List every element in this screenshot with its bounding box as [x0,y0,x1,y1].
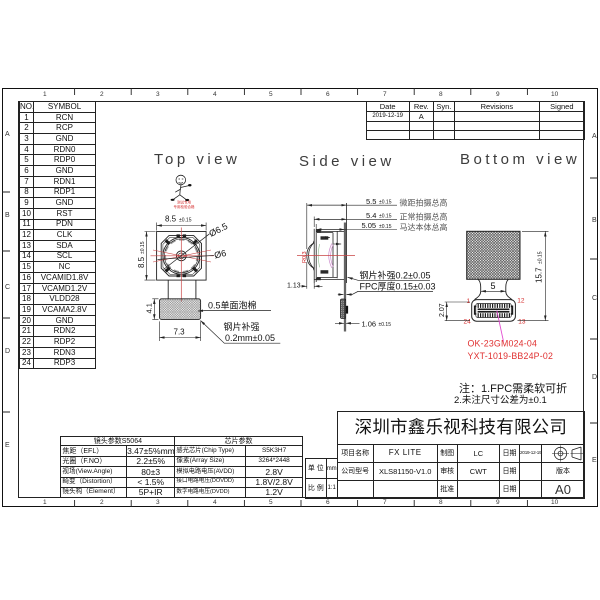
svg-text:7.3: 7.3 [174,328,186,337]
svg-text:5: 5 [491,281,496,291]
svg-text:Ø6: Ø6 [213,248,227,260]
svg-text:8.5: 8.5 [165,215,177,224]
svg-text:R0.3: R0.3 [302,251,308,263]
svg-text:24: 24 [464,319,472,326]
svg-text:±0.15: ±0.15 [379,224,392,230]
svg-text:13: 13 [518,319,526,326]
svg-text:0.5单面泡棉: 0.5单面泡棉 [208,299,257,310]
svg-text:15.7: 15.7 [535,267,544,283]
svg-text:8.5: 8.5 [137,256,146,268]
svg-text:FPC厚度0.15±0.03: FPC厚度0.15±0.03 [360,281,436,292]
svg-text:5.5: 5.5 [366,197,376,206]
svg-text:钢片补强0.2±0.05: 钢片补强0.2±0.05 [360,269,431,280]
svg-text:微距拍摄总高: 微距拍摄总高 [400,198,448,208]
svg-text:5.05: 5.05 [362,221,377,230]
svg-text:±0.15: ±0.15 [379,200,392,206]
svg-text:钢片补强: 钢片补强 [224,321,260,332]
svg-text:4.1: 4.1 [145,303,154,313]
svg-text:1: 1 [467,298,471,305]
svg-text:专用检验合格: 专用检验合格 [174,204,195,209]
svg-text:马达本体总高: 马达本体总高 [400,222,448,232]
svg-text:12: 12 [517,298,525,305]
svg-text:1.13: 1.13 [287,283,301,290]
svg-text:YXT-1019-BB24P-02: YXT-1019-BB24P-02 [468,351,554,361]
svg-text:±0.15: ±0.15 [538,251,544,264]
svg-text:测试专用: 测试专用 [177,200,191,205]
svg-text:±0.15: ±0.15 [379,322,392,328]
svg-text:1.06: 1.06 [362,319,377,328]
svg-text:±0.15: ±0.15 [140,241,146,254]
svg-text:±0.15: ±0.15 [179,217,192,223]
svg-text:2.07: 2.07 [439,303,446,317]
svg-text:正常拍摄总高: 正常拍摄总高 [400,211,448,221]
svg-text:Ø6.5: Ø6.5 [207,221,229,239]
svg-text:5.4: 5.4 [366,211,376,220]
svg-text:±0.15: ±0.15 [379,214,392,220]
svg-text:OK-23GM024-04: OK-23GM024-04 [468,339,538,349]
svg-text:0.2mm±0.05: 0.2mm±0.05 [225,333,275,343]
